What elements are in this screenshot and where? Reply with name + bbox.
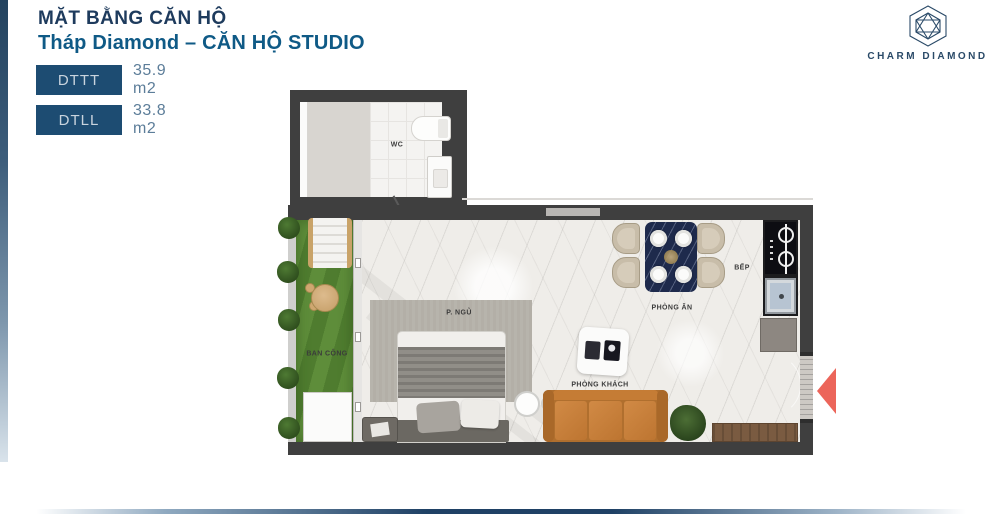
room-label-wc: WC: [391, 142, 403, 149]
page-title: MẶT BẰNG CĂN HỘ: [38, 8, 365, 30]
dining-chair: [612, 257, 640, 288]
tv-console: [712, 423, 798, 442]
legend-badge-dtll: DTLL: [36, 105, 122, 135]
bed: [398, 332, 505, 442]
legend-value-dtll: 33.8 m2: [133, 105, 166, 135]
entrance-opening: [800, 355, 813, 420]
plant-bush-icon: [278, 309, 300, 331]
cooktop-icon: [765, 222, 796, 274]
room-label-dining: PHÒNG ĂN: [652, 305, 693, 312]
legend-value-dttt: 35.9 m2: [133, 65, 166, 95]
kitchen-counter: [763, 220, 798, 316]
balcony-utility-unit: [303, 392, 352, 442]
header: MẶT BẰNG CĂN HỘ Tháp Diamond – CĂN HỘ ST…: [38, 8, 365, 55]
page-subtitle: Tháp Diamond – CĂN HỘ STUDIO: [38, 32, 365, 55]
balcony-sliding-door: [353, 220, 362, 442]
floorplan: WC P. NGỦ BAN CÔNG PHÒNG ĂN BẾP PHÒNG KH…: [285, 85, 850, 460]
room-label-bedroom: P. NGỦ: [446, 310, 472, 317]
dining-chair: [612, 223, 640, 254]
plant-bush-icon: [278, 417, 300, 439]
nightstand: [362, 417, 398, 442]
room-label-kitchen: BẾP: [734, 265, 750, 272]
pillow: [416, 401, 461, 434]
room-label-living: PHÒNG KHÁCH: [571, 382, 628, 389]
laundry-area: [308, 102, 370, 197]
left-accent-strip: [0, 0, 8, 462]
wall-shadow: [462, 198, 813, 200]
wc-floor: [300, 102, 442, 197]
fridge-cabinet: [760, 318, 797, 352]
media-device: [603, 340, 620, 361]
plant-bush-icon: [277, 261, 299, 283]
dining-chair: [697, 257, 725, 288]
brand-name: CHARM DIAMOND: [860, 51, 995, 62]
balcony-railing: [288, 220, 296, 442]
plant-bush-icon: [278, 217, 300, 239]
wc-sink-icon: [427, 156, 452, 198]
window-marker: [546, 208, 600, 216]
dining-chair: [697, 223, 725, 254]
hexagon-diamond-icon: [906, 5, 950, 47]
bottom-accent-rule: [36, 509, 966, 514]
toilet-tank: [438, 119, 448, 138]
media-panel: [576, 326, 629, 376]
room-label-balcony: BAN CÔNG: [306, 351, 347, 358]
plant-bush-icon: [277, 367, 299, 389]
legend-badge-dttt: DTTT: [36, 65, 122, 95]
wc-room: [290, 90, 467, 220]
dining-table: [645, 222, 697, 292]
sofa: [543, 390, 668, 442]
lounge-chair: [308, 218, 352, 268]
balcony-table: [311, 284, 339, 312]
pillow: [460, 399, 499, 429]
media-device: [584, 341, 600, 360]
potted-plant-icon: [670, 405, 706, 441]
kitchen-sink-icon: [765, 278, 796, 314]
bed-blanket: [398, 347, 505, 398]
technical-shaft: [300, 102, 308, 197]
coffee-table: [514, 391, 540, 417]
brand-logo: CHARM DIAMOND: [860, 5, 995, 62]
table-centerpiece: [664, 250, 678, 264]
toilet-icon: [411, 116, 451, 141]
entrance-arrow-icon: [817, 368, 836, 414]
